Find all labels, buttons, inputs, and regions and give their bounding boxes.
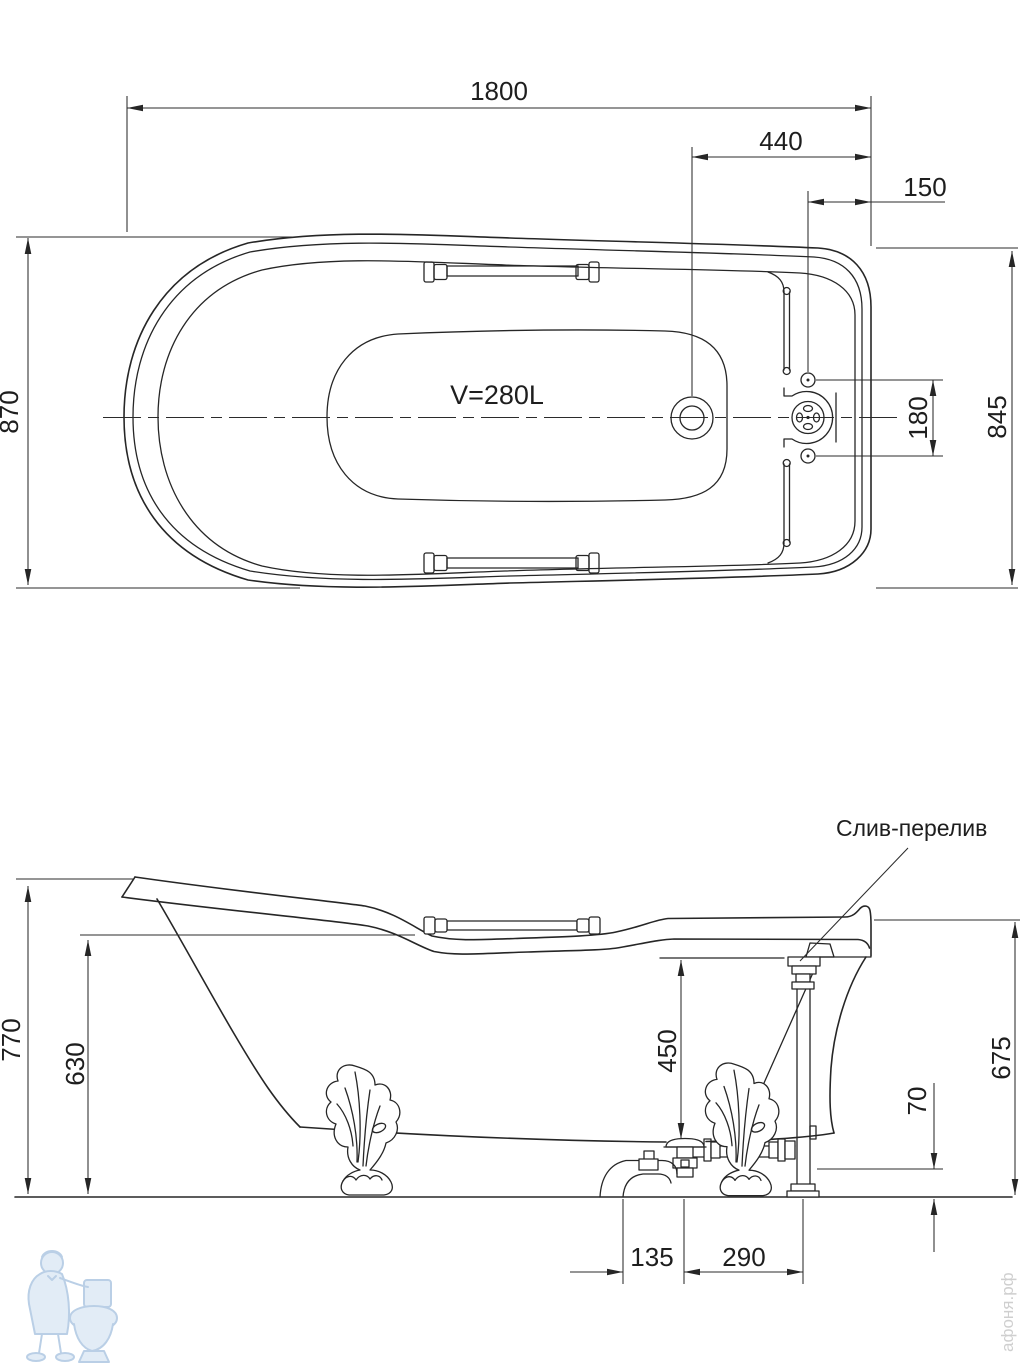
plan-basin [327,330,727,501]
overflow-fitting [792,402,824,434]
dim-length-label: 1800 [470,76,528,106]
grab-bar-bottom [424,553,599,573]
dim-pipe-clearance-label: 70 [902,1087,932,1116]
dim-height-back-label: 770 [0,1018,26,1061]
dim-hole-spacing-label: 180 [903,396,933,439]
back-slope [157,899,300,1127]
plan-view [103,234,900,587]
drain-assembly [600,1139,706,1198]
rim-under-edge [122,897,870,954]
claw-foot-rear [705,1063,778,1196]
dim-depth-label: 450 [652,1029,682,1072]
plumber-watermark [27,1251,117,1362]
overflow-leader-line [800,848,908,961]
dim-drain-to-end-label: 440 [759,126,802,156]
plan-outer-outline [124,234,871,587]
claw-foot-front [326,1065,399,1195]
dim-width-right-label: 845 [982,395,1012,438]
side-dimensions: 770 630 450 675 70 135 290 Слив-перелив [0,815,1020,1284]
drawing-svg: 1800 440 150 870 845 180 V=280L [0,0,1023,1364]
volume-label: V=280L [450,380,544,410]
plan-rim-bead [133,243,862,579]
site-watermark: афоня.рф [998,1272,1017,1352]
side-view [15,877,1012,1197]
overflow-label: Слив-перелив [836,815,987,841]
pocket-step-bottom [768,543,784,563]
dim-trap-to-drain-label: 135 [630,1242,673,1272]
rim-top-edge [135,877,871,956]
shell-right-edge [830,957,866,1133]
dim-overflow-to-end-label: 150 [903,172,946,202]
side-grab-bar [424,917,600,934]
dim-height-right-label: 675 [986,1036,1016,1079]
rim-back-face [122,877,135,897]
pocket-step-top [768,272,784,292]
bathtub-technical-drawing: 1800 440 150 870 845 180 V=280L [0,0,1023,1364]
support-strut [764,957,820,1083]
dim-drain-to-column-label: 290 [722,1242,765,1272]
plan-dimensions: 1800 440 150 870 845 180 V=280L [0,76,1018,588]
dim-height-rim-label: 630 [60,1042,90,1085]
dim-width-left-label: 870 [0,390,24,433]
